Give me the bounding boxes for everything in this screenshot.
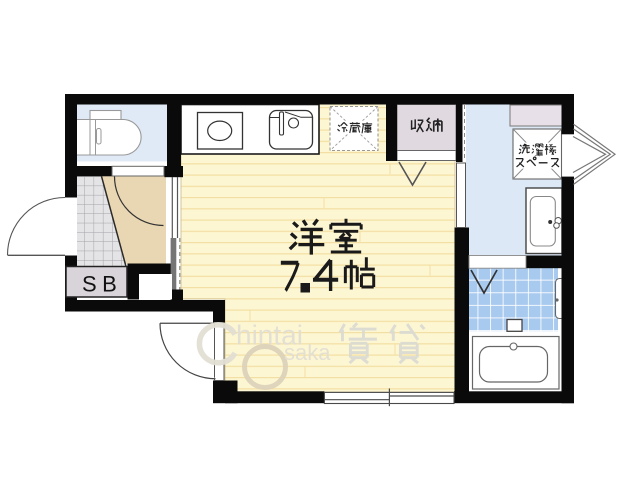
svg-text:saka: saka bbox=[284, 340, 331, 365]
svg-text:SB: SB bbox=[82, 272, 122, 297]
